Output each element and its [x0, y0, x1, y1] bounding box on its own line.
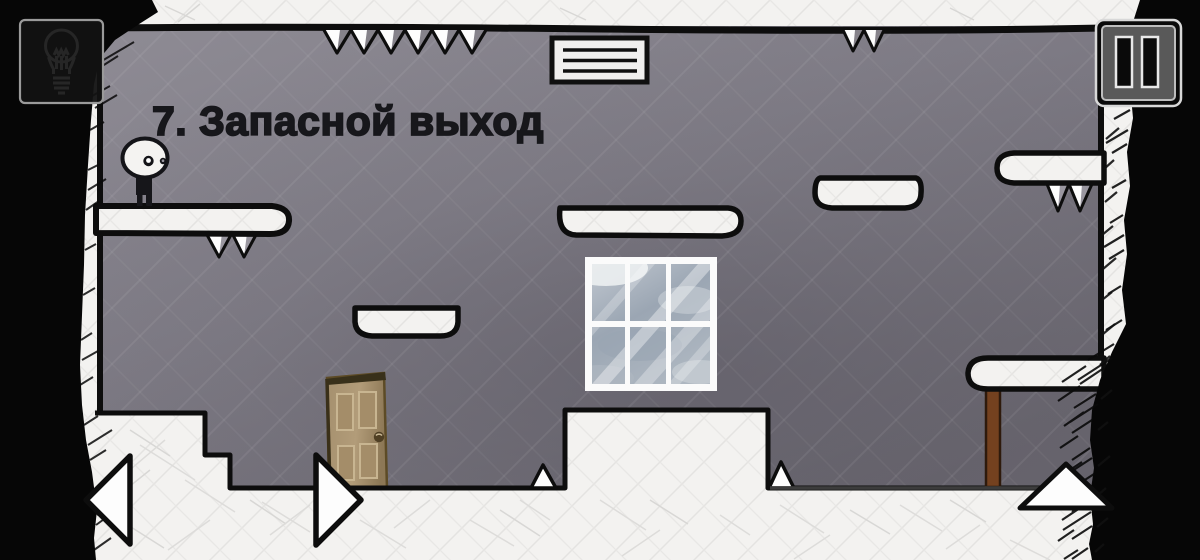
svg-text:7. Запасной выход: 7. Запасной выход	[152, 98, 544, 144]
